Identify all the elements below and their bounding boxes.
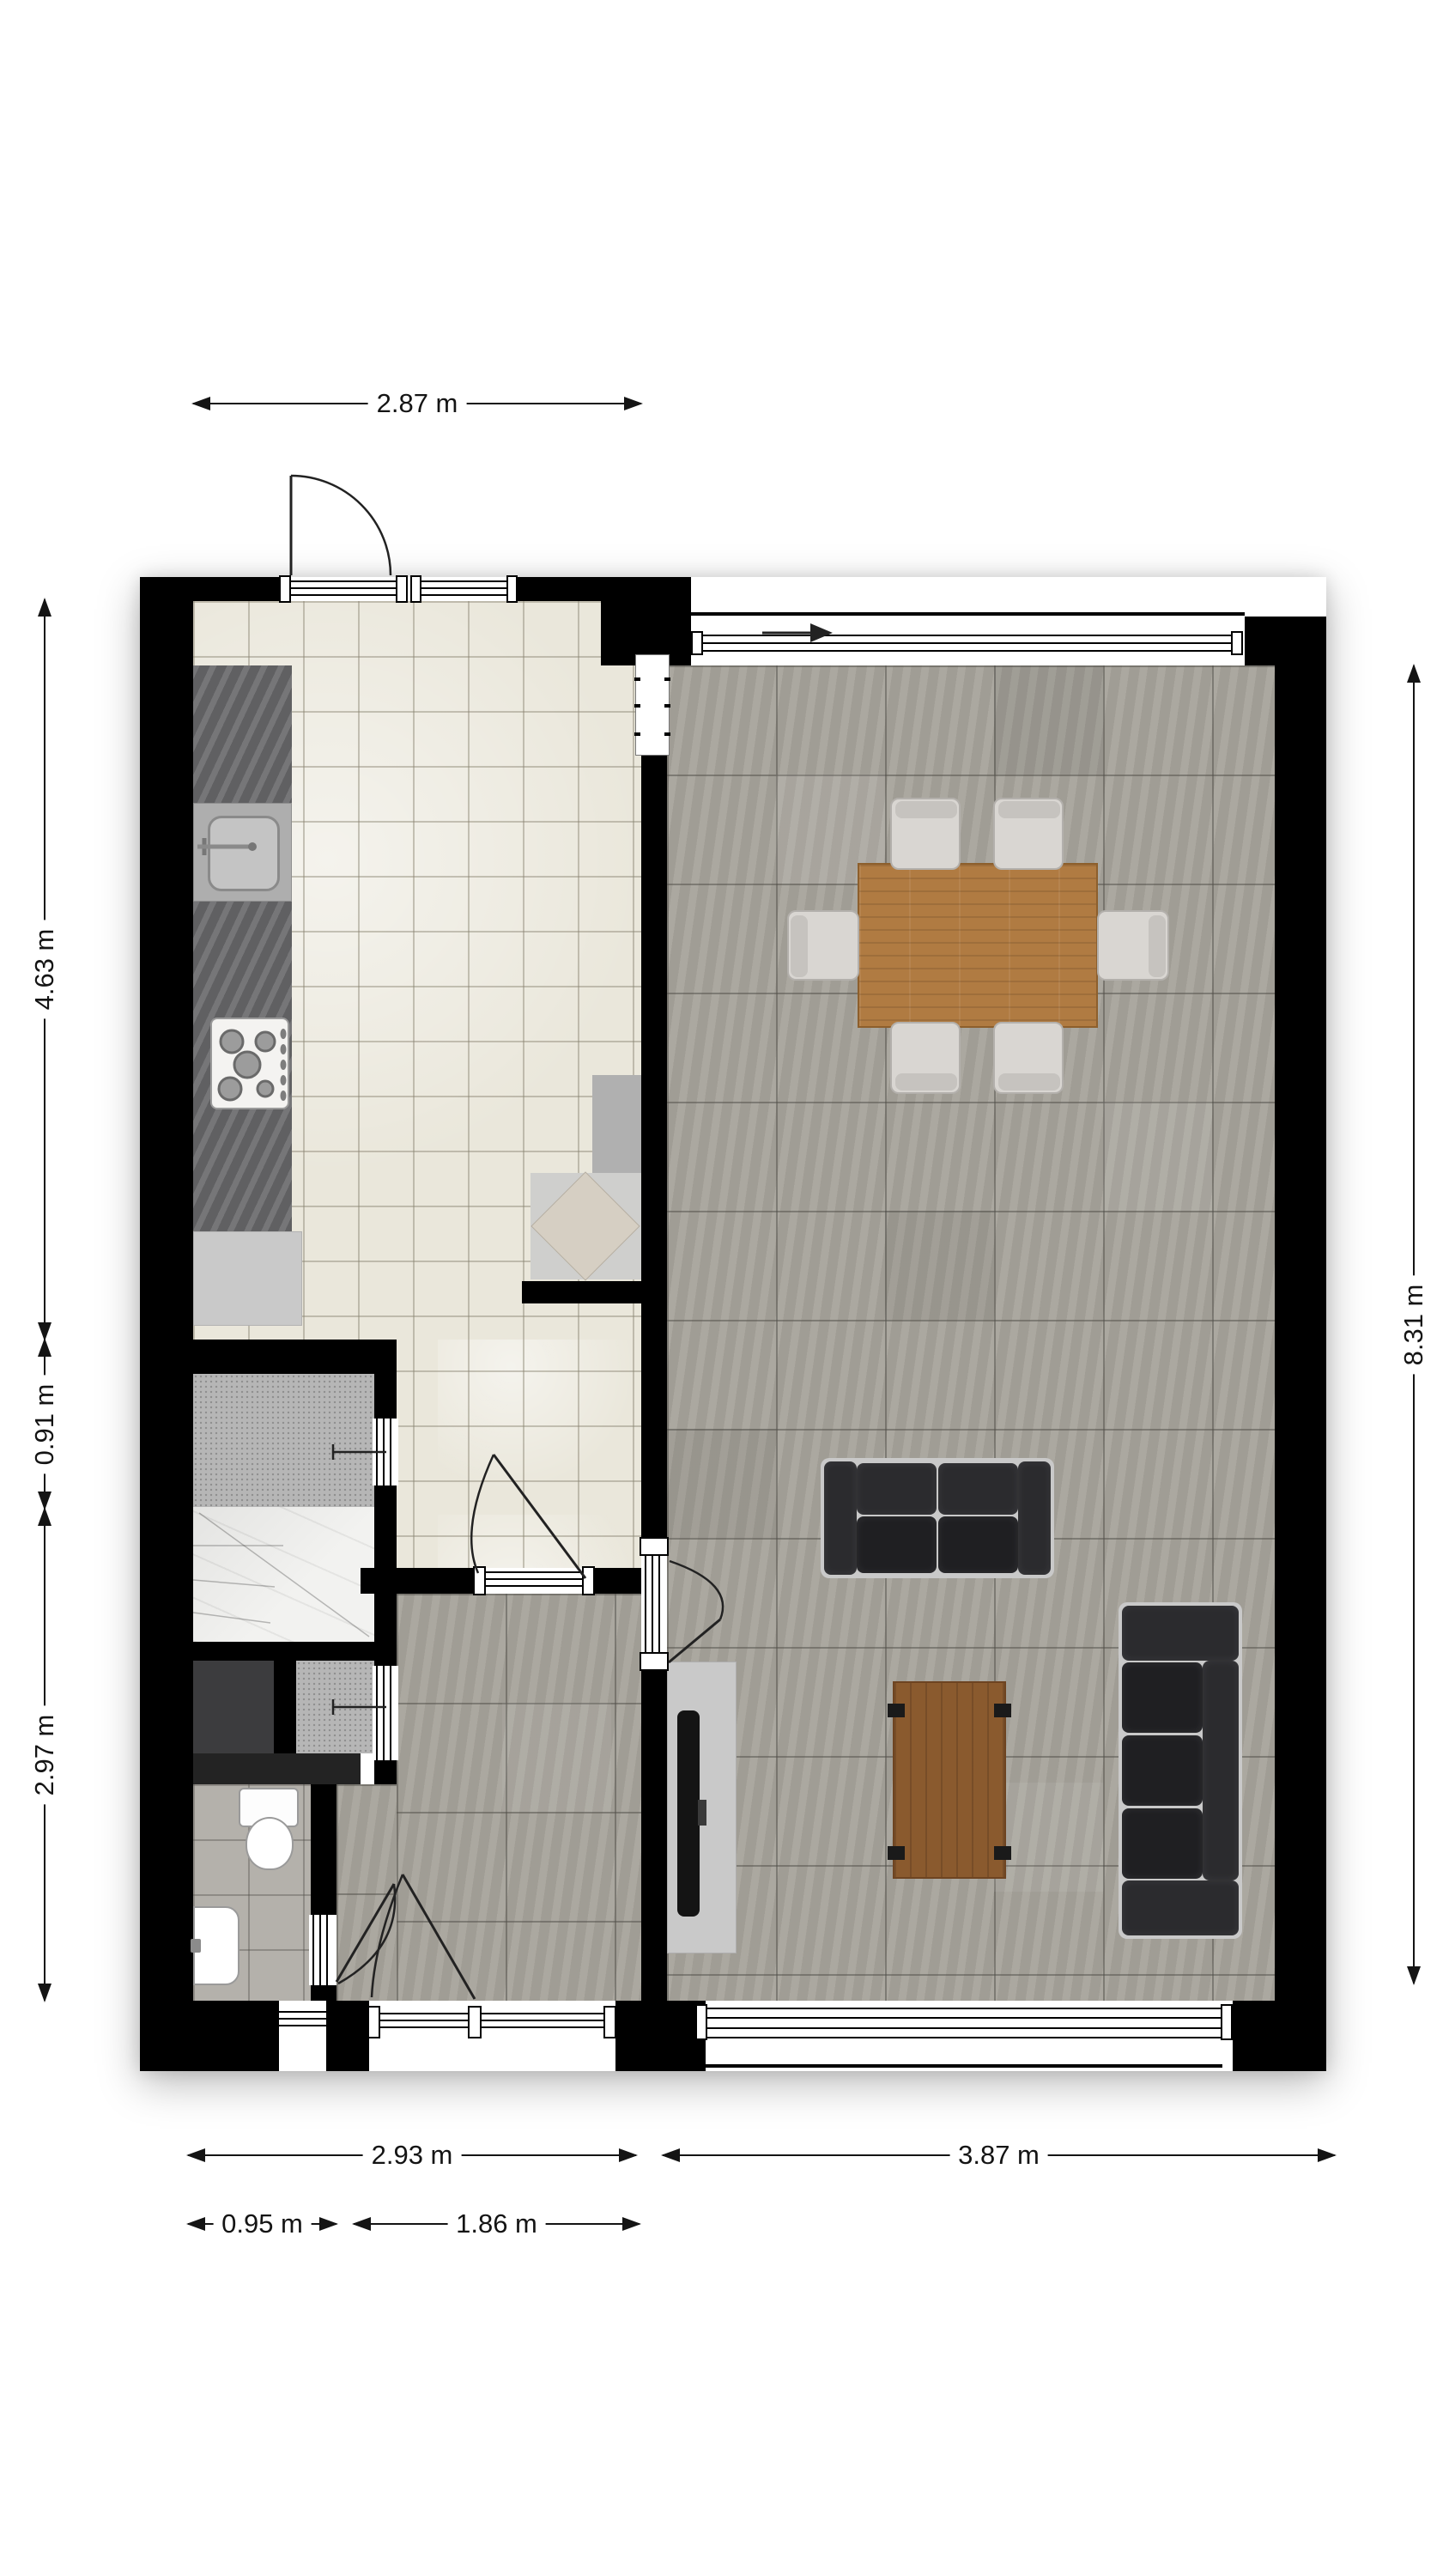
sofa-three-seat: [1119, 1602, 1242, 1939]
meter-closet-door: [373, 1666, 398, 1760]
wall-closet-north: [140, 1340, 397, 1374]
window-post: [1221, 2004, 1233, 2040]
door-post: [367, 2006, 380, 2038]
closet-door: [373, 1419, 398, 1485]
dining-table: [858, 863, 1098, 1028]
hallway-floor-west: [336, 1784, 397, 2001]
dimension-label: 2.97 m: [30, 1705, 59, 1804]
radiator: [635, 654, 670, 756]
wall-meter-east-b: [374, 1760, 397, 1784]
dimension-label: 2.93 m: [363, 2141, 462, 2170]
dining-chair: [993, 798, 1064, 870]
door-post: [279, 575, 291, 603]
entrance-door-swing: [291, 476, 391, 575]
sofa-two-seat: [821, 1458, 1054, 1578]
door-post: [640, 1537, 669, 1556]
coffee-table-clamp: [994, 1704, 1011, 1717]
wall-closet-east-b: [374, 1485, 397, 1666]
door-post: [582, 1566, 595, 1595]
wall-south-b: [326, 2001, 369, 2071]
coffee-table: [893, 1681, 1006, 1879]
dim-left-mid: 0.91 m: [44, 1340, 45, 1509]
dim-right: 8.31 m: [1413, 665, 1415, 1984]
dim-top: 2.87 m: [193, 403, 641, 404]
floor-tile-tint: [994, 1783, 1103, 1892]
tv-screen: [677, 1710, 700, 1917]
living-north-outer-line: [691, 612, 1245, 616]
dining-chair: [787, 910, 859, 981]
coffee-table-clamp: [888, 1704, 905, 1717]
floor-tile-tint: [667, 1429, 776, 1538]
coffee-table-clamp: [888, 1846, 905, 1860]
meter-closet-floor: [296, 1661, 374, 1753]
front-door-glazing: [369, 2009, 615, 2035]
kitchen-corner-block: [592, 1075, 641, 1173]
sink-basin: [208, 816, 280, 891]
living-south-window: [706, 2008, 1222, 2038]
wall-utility-divider: [274, 1661, 296, 1753]
wall-kitchen-north: [193, 577, 279, 601]
door-post: [396, 575, 408, 603]
dimension-label: 8.31 m: [1399, 1275, 1428, 1374]
toilet-bowl: [246, 1817, 294, 1870]
door-post: [473, 1566, 486, 1595]
staircase: [193, 1507, 374, 1642]
living-door-leaf: [641, 1556, 667, 1652]
kitchen-cabinet: [193, 1231, 302, 1326]
wall-stub-kitchen-south: [522, 1281, 641, 1303]
door-post: [603, 2006, 616, 2038]
dining-chair: [993, 1022, 1064, 1094]
window-post: [506, 575, 518, 603]
wall-right: [1275, 618, 1326, 2071]
toilet-door: [309, 1915, 335, 1985]
window-post: [691, 631, 703, 655]
dimension-label: 0.95 m: [213, 2209, 312, 2239]
door-post: [468, 2006, 482, 2038]
floor-plan: 2.87 m 4.63 m 0.91 m 2.97 m 8.31 m 2.93 …: [0, 0, 1449, 2576]
dimension-label: 3.87 m: [949, 2141, 1048, 2170]
closet-floor: [193, 1374, 374, 1507]
utility-dark-unit: [193, 1661, 274, 1753]
kitchen-north-window: [412, 577, 517, 601]
dining-chair: [1097, 910, 1169, 981]
wall-south-a: [140, 2001, 279, 2071]
wall-toilet-north: [193, 1753, 361, 1784]
dim-bottom-right: 3.87 m: [663, 2154, 1335, 2156]
living-north-window: [691, 635, 1243, 652]
kitchen-floor-lower: [397, 1340, 641, 1568]
dim-bottom-toilet: 0.95 m: [188, 2223, 336, 2225]
coffee-table-clamp: [994, 1846, 1011, 1860]
dim-bottom-hall: 1.86 m: [354, 2223, 640, 2225]
toilet-window: [279, 2008, 326, 2032]
kitchen-hall-glazed-door: [475, 1568, 594, 1594]
kitchen-counter-upper: [193, 665, 292, 803]
dining-chair: [890, 1022, 961, 1094]
wall-south-c: [615, 2001, 706, 2071]
dimension-label: 4.63 m: [30, 920, 59, 1019]
wall-closet-east-a: [374, 1374, 397, 1419]
door-post: [640, 1652, 669, 1671]
wall-hall-north-b: [594, 1568, 641, 1594]
wall-toilet-east-b: [311, 1985, 336, 2001]
dining-chair: [890, 798, 961, 870]
wall-left: [140, 577, 193, 2071]
dimension-label: 1.86 m: [447, 2209, 546, 2239]
window-post: [1231, 631, 1243, 655]
dim-bottom-left: 2.93 m: [188, 2154, 636, 2156]
dim-left-upper: 4.63 m: [44, 599, 45, 1340]
living-south-outer-line: [706, 2064, 1222, 2068]
entrance-door-opening: [279, 577, 408, 601]
window-post: [410, 575, 421, 603]
floor-tile-tint: [885, 1211, 994, 1320]
tv-mount: [698, 1800, 706, 1826]
wall-corner-se: [1233, 2001, 1326, 2071]
basin-faucet-icon: [191, 1939, 201, 1953]
floor-tile-tint: [1103, 1102, 1212, 1211]
dimension-label: 2.87 m: [368, 389, 467, 418]
wall-toilet-east: [311, 1784, 336, 1915]
floor-tile-tint: [994, 665, 1103, 775]
wall-living-west-lower: [641, 1671, 667, 2001]
dimension-label: 0.91 m: [30, 1375, 59, 1473]
floor-tile-tint: [502, 1703, 611, 1812]
dim-left-lower: 2.97 m: [44, 1509, 45, 2001]
gas-hob: [210, 1018, 289, 1109]
wall-stairs-south: [193, 1642, 374, 1661]
window-post: [695, 2004, 707, 2040]
